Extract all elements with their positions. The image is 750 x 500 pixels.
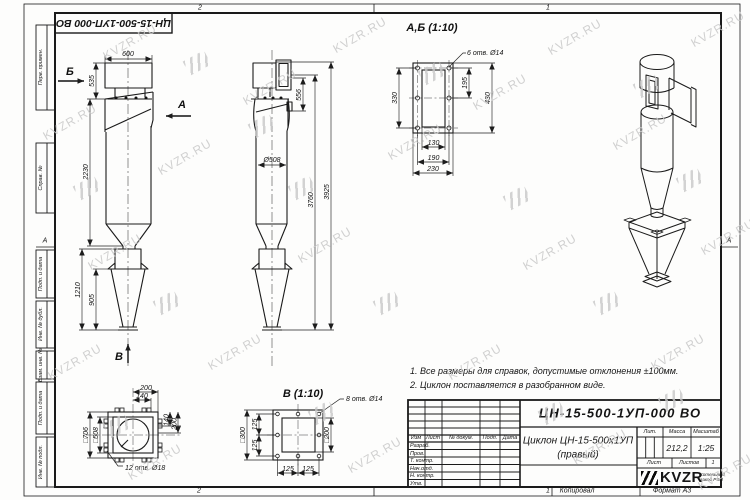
scale-label: Масштаб bbox=[693, 429, 719, 435]
note-line-1: 1. Все размеры для справок, допустимые о… bbox=[410, 366, 678, 376]
row-nachotd: Нач.отд. bbox=[410, 466, 433, 472]
margin-label-perv: Перв. примен. bbox=[38, 49, 44, 86]
mass-value: 212,2 bbox=[666, 443, 687, 453]
holes-label-ab: 6 отв. Ø14 bbox=[467, 50, 503, 57]
bottom-flange-view: 200 140 140 200 □508 □706 12 отв. Ø18 bbox=[83, 385, 182, 472]
detail-ab-view: А,Б (1:10) 6 отв bbox=[392, 22, 503, 176]
format-label: Формат А3 bbox=[653, 488, 691, 495]
dim-125la: 125 bbox=[252, 419, 259, 431]
dim-sq200: □200 bbox=[324, 427, 331, 443]
dim-b200r: 200 bbox=[172, 418, 179, 431]
col-doc: № докум. bbox=[449, 435, 473, 441]
sheets-value: 1 bbox=[711, 460, 714, 466]
holes-label-8: 8 отв. Ø14 bbox=[346, 396, 382, 403]
section-label-b: Б bbox=[66, 66, 74, 78]
col-podp: Подп. bbox=[483, 435, 498, 441]
row-nkontr: Н. контр. bbox=[410, 473, 435, 479]
lit-label: Лит. bbox=[644, 429, 657, 435]
margin-label-sprav: Справ. № bbox=[38, 166, 44, 191]
doc-number-top: ЦН-15-500-1УП-000 ВО bbox=[56, 14, 171, 32]
dim-b200t: 200 bbox=[139, 385, 152, 392]
dim-1210: 1210 bbox=[75, 282, 82, 298]
dim-905: 905 bbox=[89, 294, 96, 306]
margin-label-inv-podl: Инв. № подл. bbox=[38, 445, 44, 479]
titleblock-name-line1: Циклон ЦН-15-500х1УП bbox=[523, 436, 633, 447]
detail-v-title: В (1:10) bbox=[283, 388, 324, 400]
detail-v-view: В (1:10) 8 отв. Ø14 □300 bbox=[240, 388, 382, 476]
zone-number-bottom-2: 2 bbox=[197, 488, 201, 495]
titleblock-name-line2: (правый) bbox=[557, 450, 598, 461]
dim-508: Ø508 bbox=[262, 157, 280, 164]
dim-3760: 3760 bbox=[308, 192, 315, 208]
drawing-sheet: 600 535 2230 1210 905 Б А В bbox=[0, 0, 750, 500]
dim-sq300: □300 bbox=[240, 427, 247, 443]
titleblock-doc-number: ЦН-15-500-1УП-000 ВО bbox=[539, 406, 701, 421]
dim-195: 195 bbox=[462, 77, 469, 89]
dim-230: 230 bbox=[426, 166, 439, 173]
logo-text: KVZR bbox=[660, 469, 703, 486]
dim-sq706: □706 bbox=[83, 427, 90, 443]
section-label-v: В bbox=[115, 351, 123, 363]
margin-label-podp1: Подп. и дата bbox=[38, 257, 44, 291]
logo-bars-icon bbox=[641, 471, 658, 485]
dim-600: 600 bbox=[122, 51, 134, 58]
margin-label-inv-dubl: Инв. № дубл. bbox=[38, 307, 44, 341]
drawing-svg: 600 535 2230 1210 905 Б А В bbox=[0, 0, 750, 500]
dim-2230: 2230 bbox=[83, 164, 90, 181]
sheet-frame bbox=[24, 4, 740, 496]
dim-125bb: 125 bbox=[302, 466, 314, 473]
section-label-a: А bbox=[177, 99, 186, 111]
col-izm: Изм bbox=[411, 435, 421, 441]
dim-b140t: 140 bbox=[136, 393, 148, 400]
dim-125ba: 125 bbox=[282, 466, 294, 473]
logo-subtext: Котельный завод РЭП bbox=[700, 472, 725, 482]
note-line-2: 2. Циклон поставляется в разобранном вид… bbox=[410, 380, 606, 390]
isometric-view bbox=[624, 55, 696, 288]
dim-556: 556 bbox=[296, 89, 303, 101]
holes-label-12: 12 отв. Ø18 bbox=[125, 465, 165, 472]
dim-3925: 3925 bbox=[324, 184, 331, 200]
dim-125lb: 125 bbox=[252, 440, 259, 452]
dim-sq508: □508 bbox=[93, 427, 100, 443]
side-view: Ø508 556 3760 3925 bbox=[251, 50, 334, 366]
col-list: Лист bbox=[426, 435, 440, 441]
sheets-label: Листов bbox=[679, 460, 699, 466]
margin-label-podp2: Подп. и дата bbox=[38, 391, 44, 425]
dim-190: 190 bbox=[428, 155, 440, 162]
col-data: Дата bbox=[503, 435, 518, 441]
zone-number-top-1: 1 bbox=[546, 5, 550, 12]
logo-subtext-line2: завод РЭП bbox=[700, 477, 725, 482]
row-razrab: Разраб. bbox=[410, 443, 430, 449]
row-utv: Утв. bbox=[410, 481, 423, 487]
front-view: 600 535 2230 1210 905 Б А В bbox=[58, 50, 191, 366]
row-prov: Пров. bbox=[410, 451, 425, 457]
dim-330: 330 bbox=[392, 92, 399, 104]
scale-value: 1:25 bbox=[698, 443, 715, 453]
zone-letter-right: А bbox=[727, 238, 732, 245]
margin-label-vzam: Взам. инв. № bbox=[38, 348, 44, 382]
zone-letter-left: А bbox=[43, 238, 48, 245]
sheet-label: Лист bbox=[647, 460, 661, 466]
mass-label: Масса bbox=[669, 429, 685, 435]
dim-130: 130 bbox=[428, 140, 440, 147]
dim-535: 535 bbox=[89, 75, 96, 87]
detail-ab-title: А,Б (1:10) bbox=[405, 22, 458, 34]
zone-number-bottom-1: 1 bbox=[546, 488, 550, 495]
zone-number-top-2: 2 bbox=[198, 5, 202, 12]
dim-430: 430 bbox=[485, 92, 492, 104]
copied-label: Копировал bbox=[560, 488, 595, 495]
dim-b140r: 140 bbox=[164, 414, 171, 426]
row-tkontr: Т. контр. bbox=[410, 458, 434, 464]
